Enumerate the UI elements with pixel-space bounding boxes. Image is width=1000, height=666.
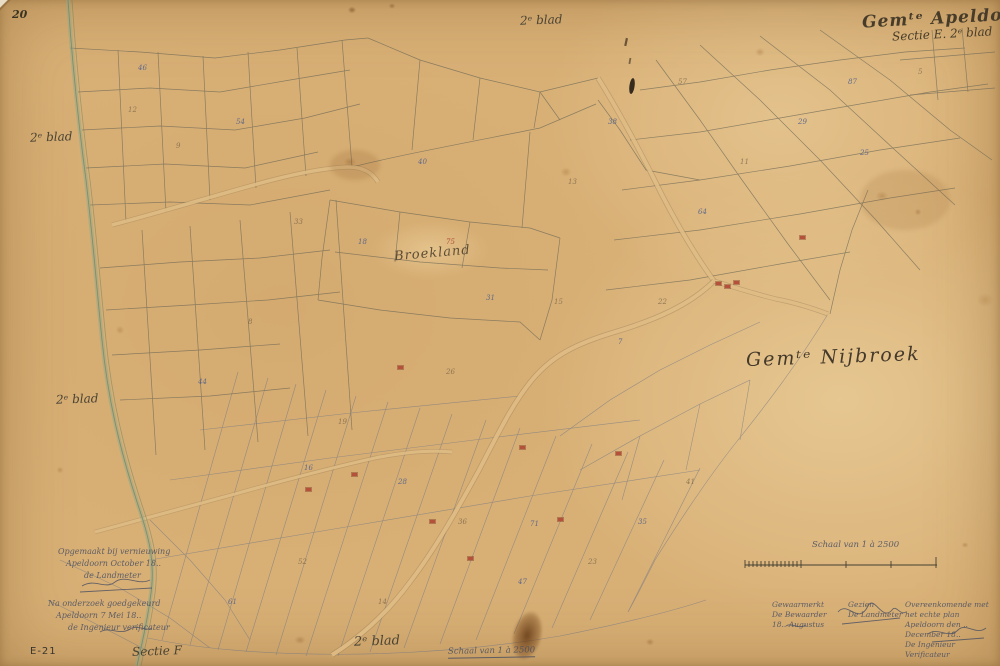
parcel-number: 46 — [138, 64, 147, 72]
parcel-number: 8 — [248, 318, 252, 326]
parcel-number: 19 — [338, 418, 347, 426]
cert-line: Apeldoorn 7 Mei 18.. — [48, 610, 170, 622]
certification-right-col2: Gezien De Landmeter — [848, 600, 903, 620]
parcel-number: 11 — [740, 158, 749, 166]
building-mark — [398, 366, 403, 369]
soft-stain — [330, 150, 380, 180]
parcel-number: 9 — [176, 142, 180, 150]
building-mark — [616, 452, 621, 455]
parcel-number: 36 — [458, 518, 467, 526]
parcel-number: 38 — [608, 118, 617, 126]
parcel-number: 44 — [198, 378, 207, 386]
cert-line: Apeldoorn den .. December 18.. — [905, 620, 997, 640]
map-sheet: 20 E-21 Gemᵗᵉ Apeldoorn Sectie E. 2ᵉ bla… — [0, 0, 1000, 666]
building-mark — [716, 282, 721, 285]
parcel-number: 13 — [568, 178, 577, 186]
cert-line: de Ingenieur verificateur — [48, 622, 170, 634]
parcel-number: 5 — [918, 68, 922, 76]
building-mark — [558, 518, 563, 521]
parcel-number: 26 — [446, 368, 455, 376]
parcel-number: 14 — [378, 598, 387, 606]
parcel-number: 57 — [678, 78, 687, 86]
parcel-number: 33 — [294, 218, 303, 226]
certification-right-col1: Gewaarmerkt De Bewaarder 18.. Augustus — [772, 600, 827, 630]
cert-line: De Landmeter — [848, 610, 903, 620]
parcel-number: 29 — [798, 118, 807, 126]
cert-line: Na onderzoek goedgekeurd — [48, 598, 170, 610]
parcel-number: 87 — [848, 78, 857, 86]
parcel-number: 75 — [446, 238, 455, 246]
parcel-number: 64 — [698, 208, 707, 216]
scale-bar — [745, 557, 937, 568]
building-mark — [306, 488, 311, 491]
edge-label-left-upper: 2ᵉ blad — [30, 129, 73, 144]
building-mark — [352, 473, 357, 476]
parcel-number: 23 — [588, 558, 597, 566]
parcel-number: 12 — [128, 106, 137, 114]
ink-blot — [624, 38, 635, 94]
parcel-number: 35 — [638, 518, 647, 526]
parcel-number: 54 — [236, 118, 245, 126]
archive-code: E-21 — [30, 646, 57, 657]
parcel-number: 40 — [418, 158, 427, 166]
cert-line: Overeenkomende met het echte plan — [905, 600, 997, 620]
certification-left-block1: Opgemaakt bij vernieuwing Apeldoorn Octo… — [58, 546, 170, 582]
edge-label-left-lower: 2ᵉ blad — [56, 391, 99, 406]
building-mark — [734, 281, 739, 284]
cert-line: de Landmeter — [58, 570, 170, 582]
parcel-number: 16 — [304, 464, 313, 472]
cert-line: Gezien — [848, 600, 903, 610]
certification-left-block2: Na onderzoek goedgekeurd Apeldoorn 7 Mei… — [48, 598, 170, 634]
roads — [95, 78, 828, 655]
parcel-number: 25 — [860, 149, 869, 157]
parcel-number: 7 — [618, 338, 622, 346]
parcel-number: 22 — [658, 298, 667, 306]
building-mark — [520, 446, 525, 449]
parcel-number: 41 — [686, 478, 695, 486]
cert-line: De Ingenieur Verificateur — [905, 640, 997, 660]
cert-line: Opgemaakt bij vernieuwing — [58, 546, 170, 558]
parcel-number: 61 — [228, 598, 237, 606]
cert-line: Apeldoorn October 18.. — [58, 558, 170, 570]
scale-caption-right: Schaal van 1 à 2500 — [812, 540, 899, 550]
adjacent-section-label: Sectie F — [132, 643, 182, 659]
cert-line: Gewaarmerkt — [772, 600, 827, 610]
certification-right-col3: Overeenkomende met het echte plan Apeldo… — [905, 600, 997, 660]
parcel-number: 31 — [486, 294, 495, 302]
cert-line: De Bewaarder — [772, 610, 827, 620]
edge-label-top: 2ᵉ blad — [520, 12, 563, 27]
parcel-number: 71 — [530, 520, 539, 528]
parcel-number: 15 — [554, 298, 563, 306]
parcel-number: 47 — [518, 578, 527, 586]
parcel-number: 18 — [358, 238, 367, 246]
building-mark — [430, 520, 435, 523]
parcel-boundaries — [70, 28, 995, 455]
cert-line: 18.. Augustus — [772, 620, 827, 630]
building-mark — [725, 285, 730, 288]
soft-stain — [860, 170, 950, 230]
page-number: 20 — [12, 8, 27, 21]
building-mark — [468, 557, 473, 560]
edge-label-bottom: 2ᵉ blad — [354, 633, 400, 650]
parcel-number: 52 — [298, 558, 307, 566]
building-mark — [800, 236, 805, 239]
parcel-number: 28 — [398, 478, 407, 486]
scale-caption-bottom: Schaal van 1 à 2500 — [448, 645, 535, 659]
